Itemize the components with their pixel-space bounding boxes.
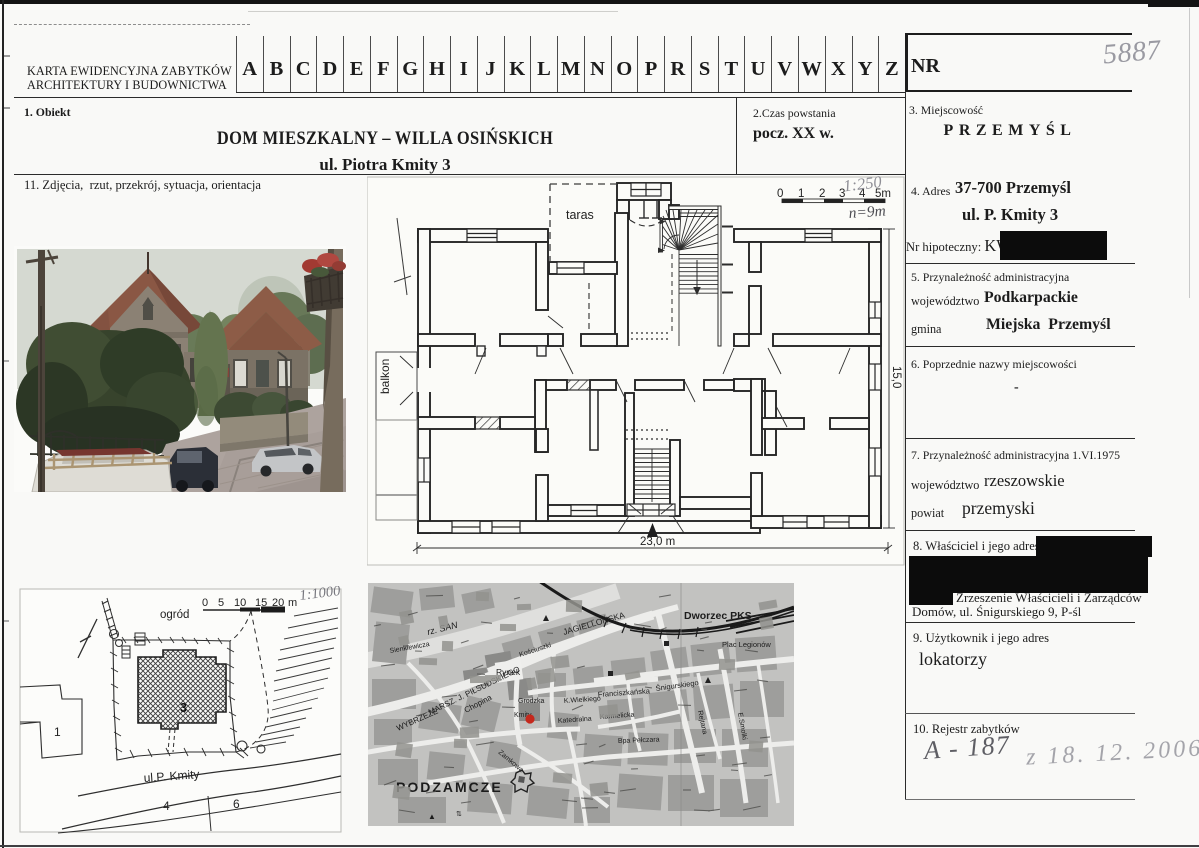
- svg-text:1: 1: [798, 188, 804, 200]
- svg-text:15,0: 15,0: [890, 366, 902, 388]
- svg-text:Grodzka: Grodzka: [518, 698, 545, 705]
- svg-text:taras: taras: [566, 208, 594, 222]
- svg-text:1: 1: [54, 725, 61, 739]
- svg-text:⇅: ⇅: [456, 811, 462, 818]
- svg-text:0: 0: [202, 597, 208, 609]
- svg-text:4: 4: [163, 799, 170, 813]
- svg-text:ogród: ogród: [160, 609, 189, 621]
- svg-text:10: 10: [234, 597, 246, 609]
- svg-text:balkon: balkon: [378, 359, 392, 394]
- svg-text:23,0 m: 23,0 m: [640, 536, 675, 548]
- svg-text:Bpa Pełczara: Bpa Pełczara: [618, 737, 660, 745]
- svg-text:PODZAMCZE: PODZAMCZE: [396, 779, 503, 795]
- svg-text:▲: ▲: [428, 812, 436, 821]
- svg-text:6: 6: [233, 797, 240, 811]
- svg-text:Plac Legionów: Plac Legionów: [722, 640, 771, 649]
- svg-text:3: 3: [180, 701, 187, 715]
- svg-text:2: 2: [819, 188, 825, 200]
- svg-text:Dworzec PKS: Dworzec PKS: [684, 610, 752, 622]
- svg-text:5: 5: [218, 597, 224, 609]
- svg-text:0: 0: [777, 188, 783, 200]
- svg-text:n=9m: n=9m: [848, 202, 886, 222]
- svg-text:m: m: [288, 597, 297, 609]
